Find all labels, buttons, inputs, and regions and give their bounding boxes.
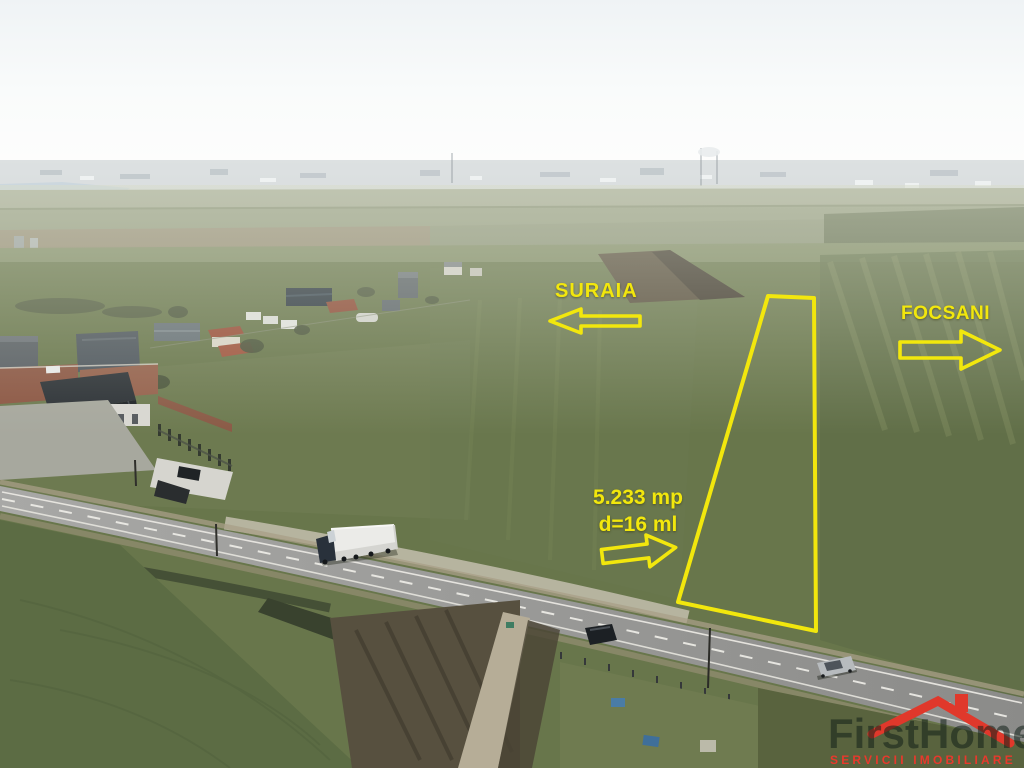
focsani-label: FOCSANI (901, 303, 990, 325)
parcel-area-label: 5.233 mp (590, 484, 686, 511)
brand-name: FirstHome (828, 710, 1024, 758)
focsani-right-arrow-icon (897, 328, 1003, 372)
suraia-label: SURAIA (555, 280, 638, 303)
suraia-left-arrow-icon (547, 306, 643, 336)
aerial-photo: SURAIA FOCSANI 5.233 mp d=16 ml FirstHom… (0, 0, 1024, 768)
brand-tagline: SERVICII IMOBILIARE (830, 753, 1016, 767)
aerial-photo-scene (0, 0, 1024, 768)
brand-watermark: FirstHome SERVICII IMOBILIARE (820, 686, 1024, 768)
